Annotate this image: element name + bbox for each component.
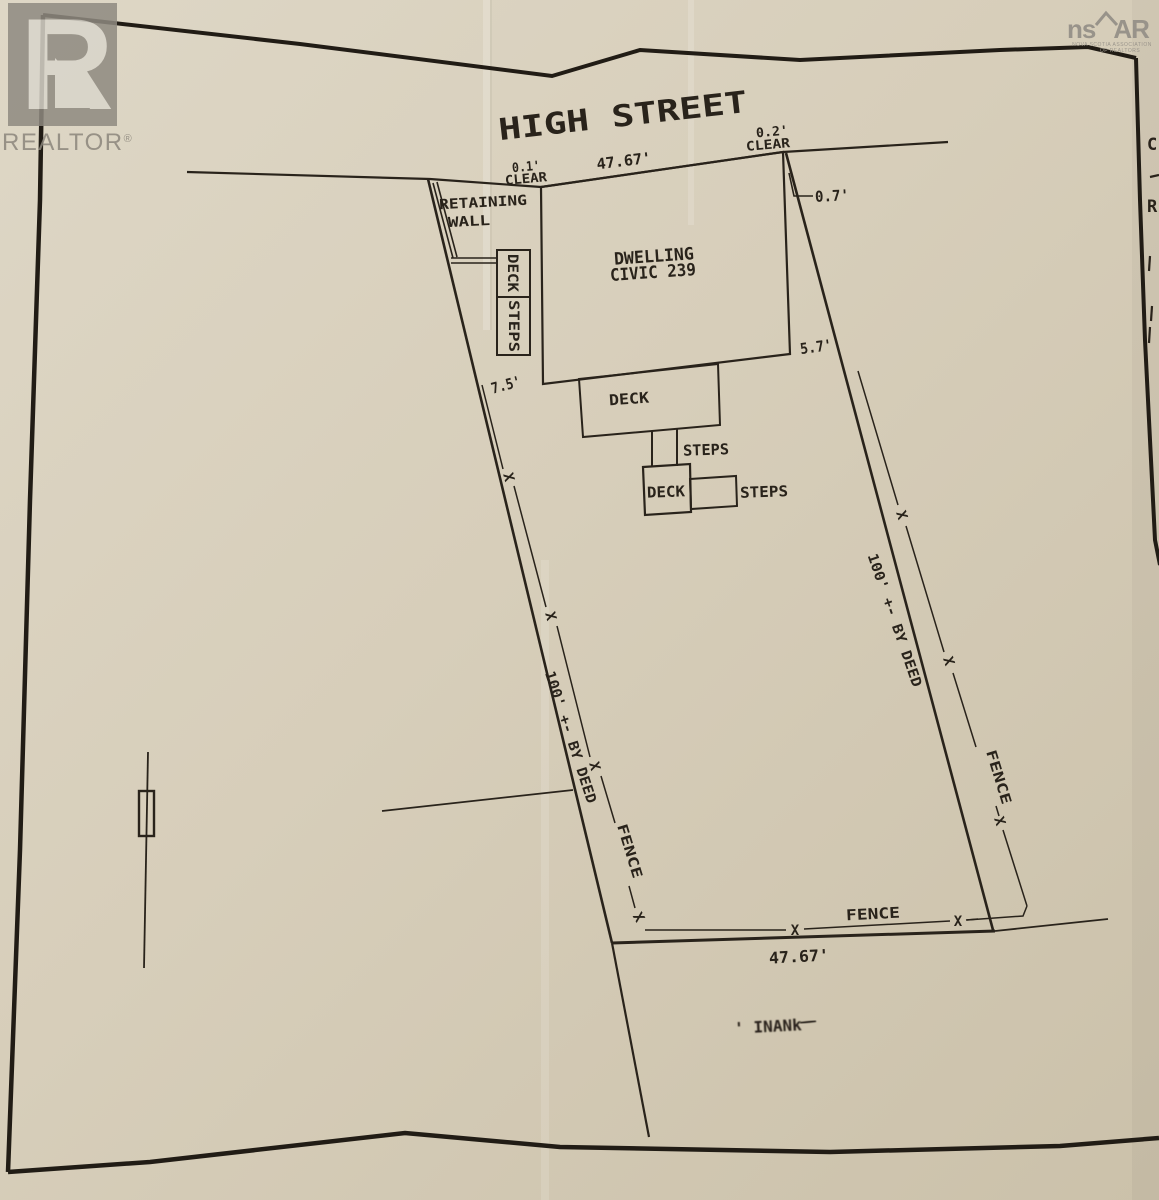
entry-deck-label: DECK xyxy=(504,254,520,293)
registered-trademark-icon: ® xyxy=(124,133,134,145)
nsar-subtext-line2: OF REALTORS xyxy=(1100,48,1140,54)
small-steps-label: STEPS xyxy=(740,482,789,502)
small-deck-label: DECK xyxy=(647,482,686,501)
realtor-watermark: R REALTOR® xyxy=(2,0,133,156)
survey-plan-photo: R REALTOR® nsAR NOVA SCOTIA ASSOCIATION … xyxy=(0,0,1159,1200)
edge-letter-c: C xyxy=(1147,135,1157,155)
steps-corridor-label: STEPS xyxy=(683,440,730,460)
edge-tick xyxy=(1151,306,1152,321)
edge-tick xyxy=(1149,256,1150,271)
edge-letter-r: R xyxy=(1147,197,1158,217)
realtor-wordmark: REALTOR® xyxy=(2,129,133,156)
fence-x-mark: X xyxy=(954,914,963,930)
handwriting-mark: ' INANk xyxy=(734,1015,803,1038)
edge-tick xyxy=(1149,327,1150,343)
fence-x-mark: X xyxy=(791,923,800,939)
nsar-ns-text: ns xyxy=(1067,14,1096,44)
realtor-wordmark-text: REALTOR xyxy=(2,129,124,156)
retaining-wall-label-line2: WALL xyxy=(448,213,491,231)
entry-steps-label: STEPS xyxy=(505,300,521,352)
corner-offset-dimension: 0.7' xyxy=(815,186,850,206)
main-deck-label: DECK xyxy=(608,389,649,410)
realtor-watermark-r-glyph: R xyxy=(20,0,114,137)
paper-edge-shade xyxy=(1132,0,1159,1200)
nsar-ar-text: AR xyxy=(1113,14,1150,44)
frontage-dimension-bottom: 47.67' xyxy=(769,945,830,967)
paper-background xyxy=(0,0,1159,1200)
paper-crease xyxy=(490,0,492,330)
survey-plan-canvas: R REALTOR® nsAR NOVA SCOTIA ASSOCIATION … xyxy=(0,0,1159,1200)
rear-fence-label: FENCE xyxy=(846,904,901,925)
paper-crease xyxy=(483,0,490,330)
